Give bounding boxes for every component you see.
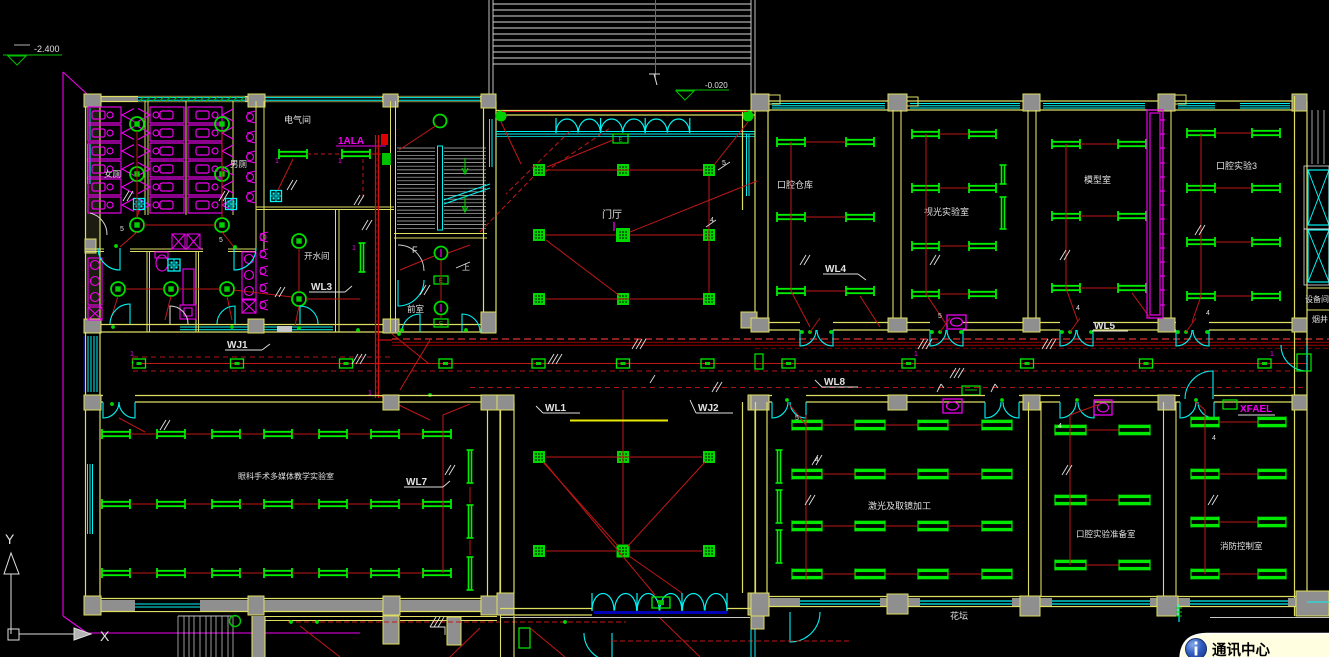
svg-text:男厕: 男厕 bbox=[230, 159, 248, 169]
svg-text:4: 4 bbox=[1212, 435, 1216, 442]
svg-text:5: 5 bbox=[938, 313, 942, 320]
svg-text:4: 4 bbox=[815, 457, 819, 464]
svg-text:口腔实验准备室: 口腔实验准备室 bbox=[1076, 529, 1136, 539]
svg-text:眼科手术多媒体教学实验室: 眼科手术多媒体教学实验室 bbox=[238, 471, 334, 481]
svg-text:WL7: WL7 bbox=[406, 477, 428, 488]
svg-text:E: E bbox=[439, 322, 443, 328]
svg-text:女厕: 女厕 bbox=[104, 169, 122, 179]
svg-text:Y: Y bbox=[5, 531, 15, 547]
svg-text:开水间: 开水间 bbox=[304, 251, 330, 261]
svg-text:5: 5 bbox=[120, 226, 124, 233]
svg-text:1: 1 bbox=[352, 245, 356, 252]
svg-text:1: 1 bbox=[914, 351, 918, 358]
svg-text:1ALA: 1ALA bbox=[338, 136, 364, 147]
svg-text:4: 4 bbox=[1076, 305, 1080, 312]
svg-text:5: 5 bbox=[219, 237, 223, 244]
svg-text:WL8: WL8 bbox=[824, 377, 846, 388]
svg-text:1: 1 bbox=[338, 158, 342, 165]
svg-text:XFAEL: XFAEL bbox=[1240, 404, 1272, 415]
svg-text:1: 1 bbox=[130, 351, 134, 358]
svg-text:模型室: 模型室 bbox=[1084, 174, 1111, 185]
svg-text:口腔实验3: 口腔实验3 bbox=[1216, 160, 1257, 171]
svg-text:1: 1 bbox=[275, 158, 279, 165]
svg-text:烟井: 烟井 bbox=[1312, 314, 1328, 324]
svg-text:通讯中心: 通讯中心 bbox=[1212, 641, 1270, 657]
svg-text:WJ2: WJ2 bbox=[698, 403, 719, 414]
svg-text:5: 5 bbox=[795, 415, 799, 422]
svg-text:口腔仓库: 口腔仓库 bbox=[777, 179, 813, 190]
svg-text:E: E bbox=[618, 138, 622, 144]
svg-text:WL1: WL1 bbox=[545, 403, 567, 414]
svg-text:消防控制室: 消防控制室 bbox=[1220, 541, 1263, 551]
svg-text:-2.400: -2.400 bbox=[34, 44, 60, 54]
svg-text:上: 上 bbox=[462, 263, 470, 272]
svg-text:WL5: WL5 bbox=[1094, 321, 1116, 332]
svg-text:WL3: WL3 bbox=[311, 282, 333, 293]
svg-text:4: 4 bbox=[1058, 423, 1062, 430]
svg-text:前室: 前室 bbox=[407, 304, 425, 314]
svg-text:WL4: WL4 bbox=[825, 264, 847, 275]
svg-text:花坛: 花坛 bbox=[950, 610, 968, 621]
svg-text:视光实验室: 视光实验室 bbox=[924, 206, 969, 217]
svg-text:WJ1: WJ1 bbox=[227, 340, 248, 351]
svg-text:-0.020: -0.020 bbox=[705, 81, 728, 90]
svg-text:4: 4 bbox=[1206, 310, 1210, 317]
svg-text:门厅: 门厅 bbox=[602, 208, 622, 221]
svg-text:电气间: 电气间 bbox=[284, 114, 311, 125]
svg-text:X: X bbox=[100, 628, 110, 644]
svg-text:激光及取镜加工: 激光及取镜加工 bbox=[868, 500, 931, 511]
svg-text:1: 1 bbox=[1270, 351, 1274, 358]
svg-text:设备间: 设备间 bbox=[1305, 294, 1329, 304]
